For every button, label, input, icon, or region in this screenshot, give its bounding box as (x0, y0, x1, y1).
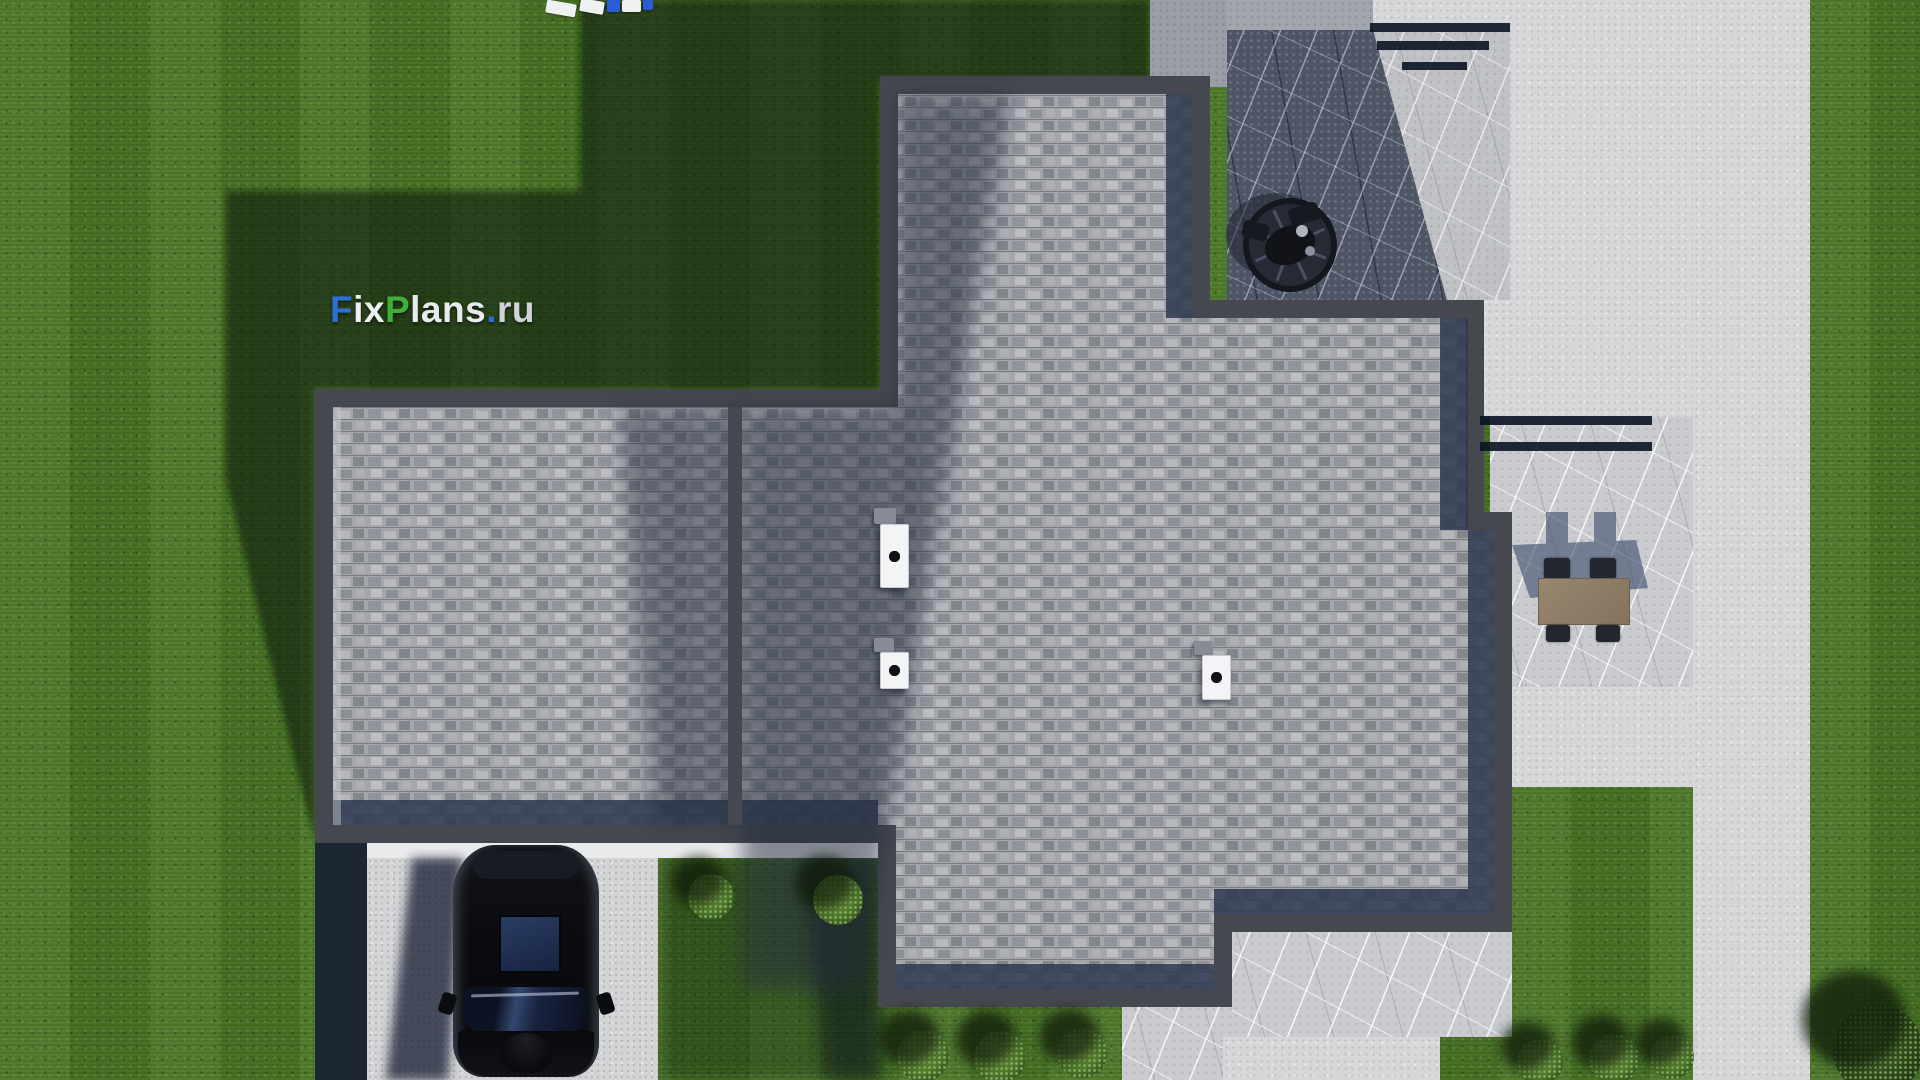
bush (1057, 1028, 1107, 1078)
grill (1226, 193, 1334, 289)
chair (1596, 625, 1620, 642)
watermark-segment: F (330, 289, 353, 330)
watermark: FixPlans.ru (330, 289, 535, 331)
bush (974, 1031, 1026, 1080)
vent-hole (889, 551, 900, 562)
vent-hole (1211, 672, 1222, 683)
roof-vent-1 (880, 524, 909, 588)
vent-cap (874, 638, 894, 652)
bush (1589, 1034, 1639, 1080)
roof-sunlit-edge (333, 407, 341, 825)
house-layer (0, 0, 1920, 1080)
watermark-segment: ru (497, 289, 535, 330)
bush (1650, 1035, 1694, 1079)
large-corner-bush (1833, 1005, 1920, 1080)
bush (813, 875, 863, 925)
chair (1544, 558, 1570, 579)
dining-set (1530, 558, 1650, 644)
bush (1517, 1039, 1563, 1080)
dining-table (1538, 578, 1630, 625)
car-windshield (463, 987, 589, 1033)
car-hood (458, 1031, 594, 1075)
blue-slat (643, 0, 653, 10)
roof-vent-2 (880, 652, 909, 689)
watermark-segment: P (385, 289, 410, 330)
watermark-segment: lans (410, 289, 486, 330)
car (453, 845, 599, 1077)
white-slat (622, 0, 641, 12)
vent-cap (1194, 641, 1213, 655)
blue-slat (607, 0, 620, 12)
bush (688, 874, 734, 920)
chair (1546, 625, 1570, 642)
chair (1590, 558, 1616, 579)
car-rear-glass (473, 851, 579, 879)
aerial-render: FixPlans.ru Aerial top-down 3D architect… (0, 0, 1920, 1080)
vent-cap (874, 508, 896, 524)
vent-hole (889, 665, 900, 676)
bush (897, 1030, 949, 1080)
watermark-segment: ix (353, 289, 385, 330)
car-shadow (386, 858, 462, 1080)
roof-vent-3 (1202, 655, 1231, 700)
car-sunroof (499, 915, 561, 973)
roof-seam (728, 407, 742, 825)
watermark-segment: . (486, 289, 497, 330)
